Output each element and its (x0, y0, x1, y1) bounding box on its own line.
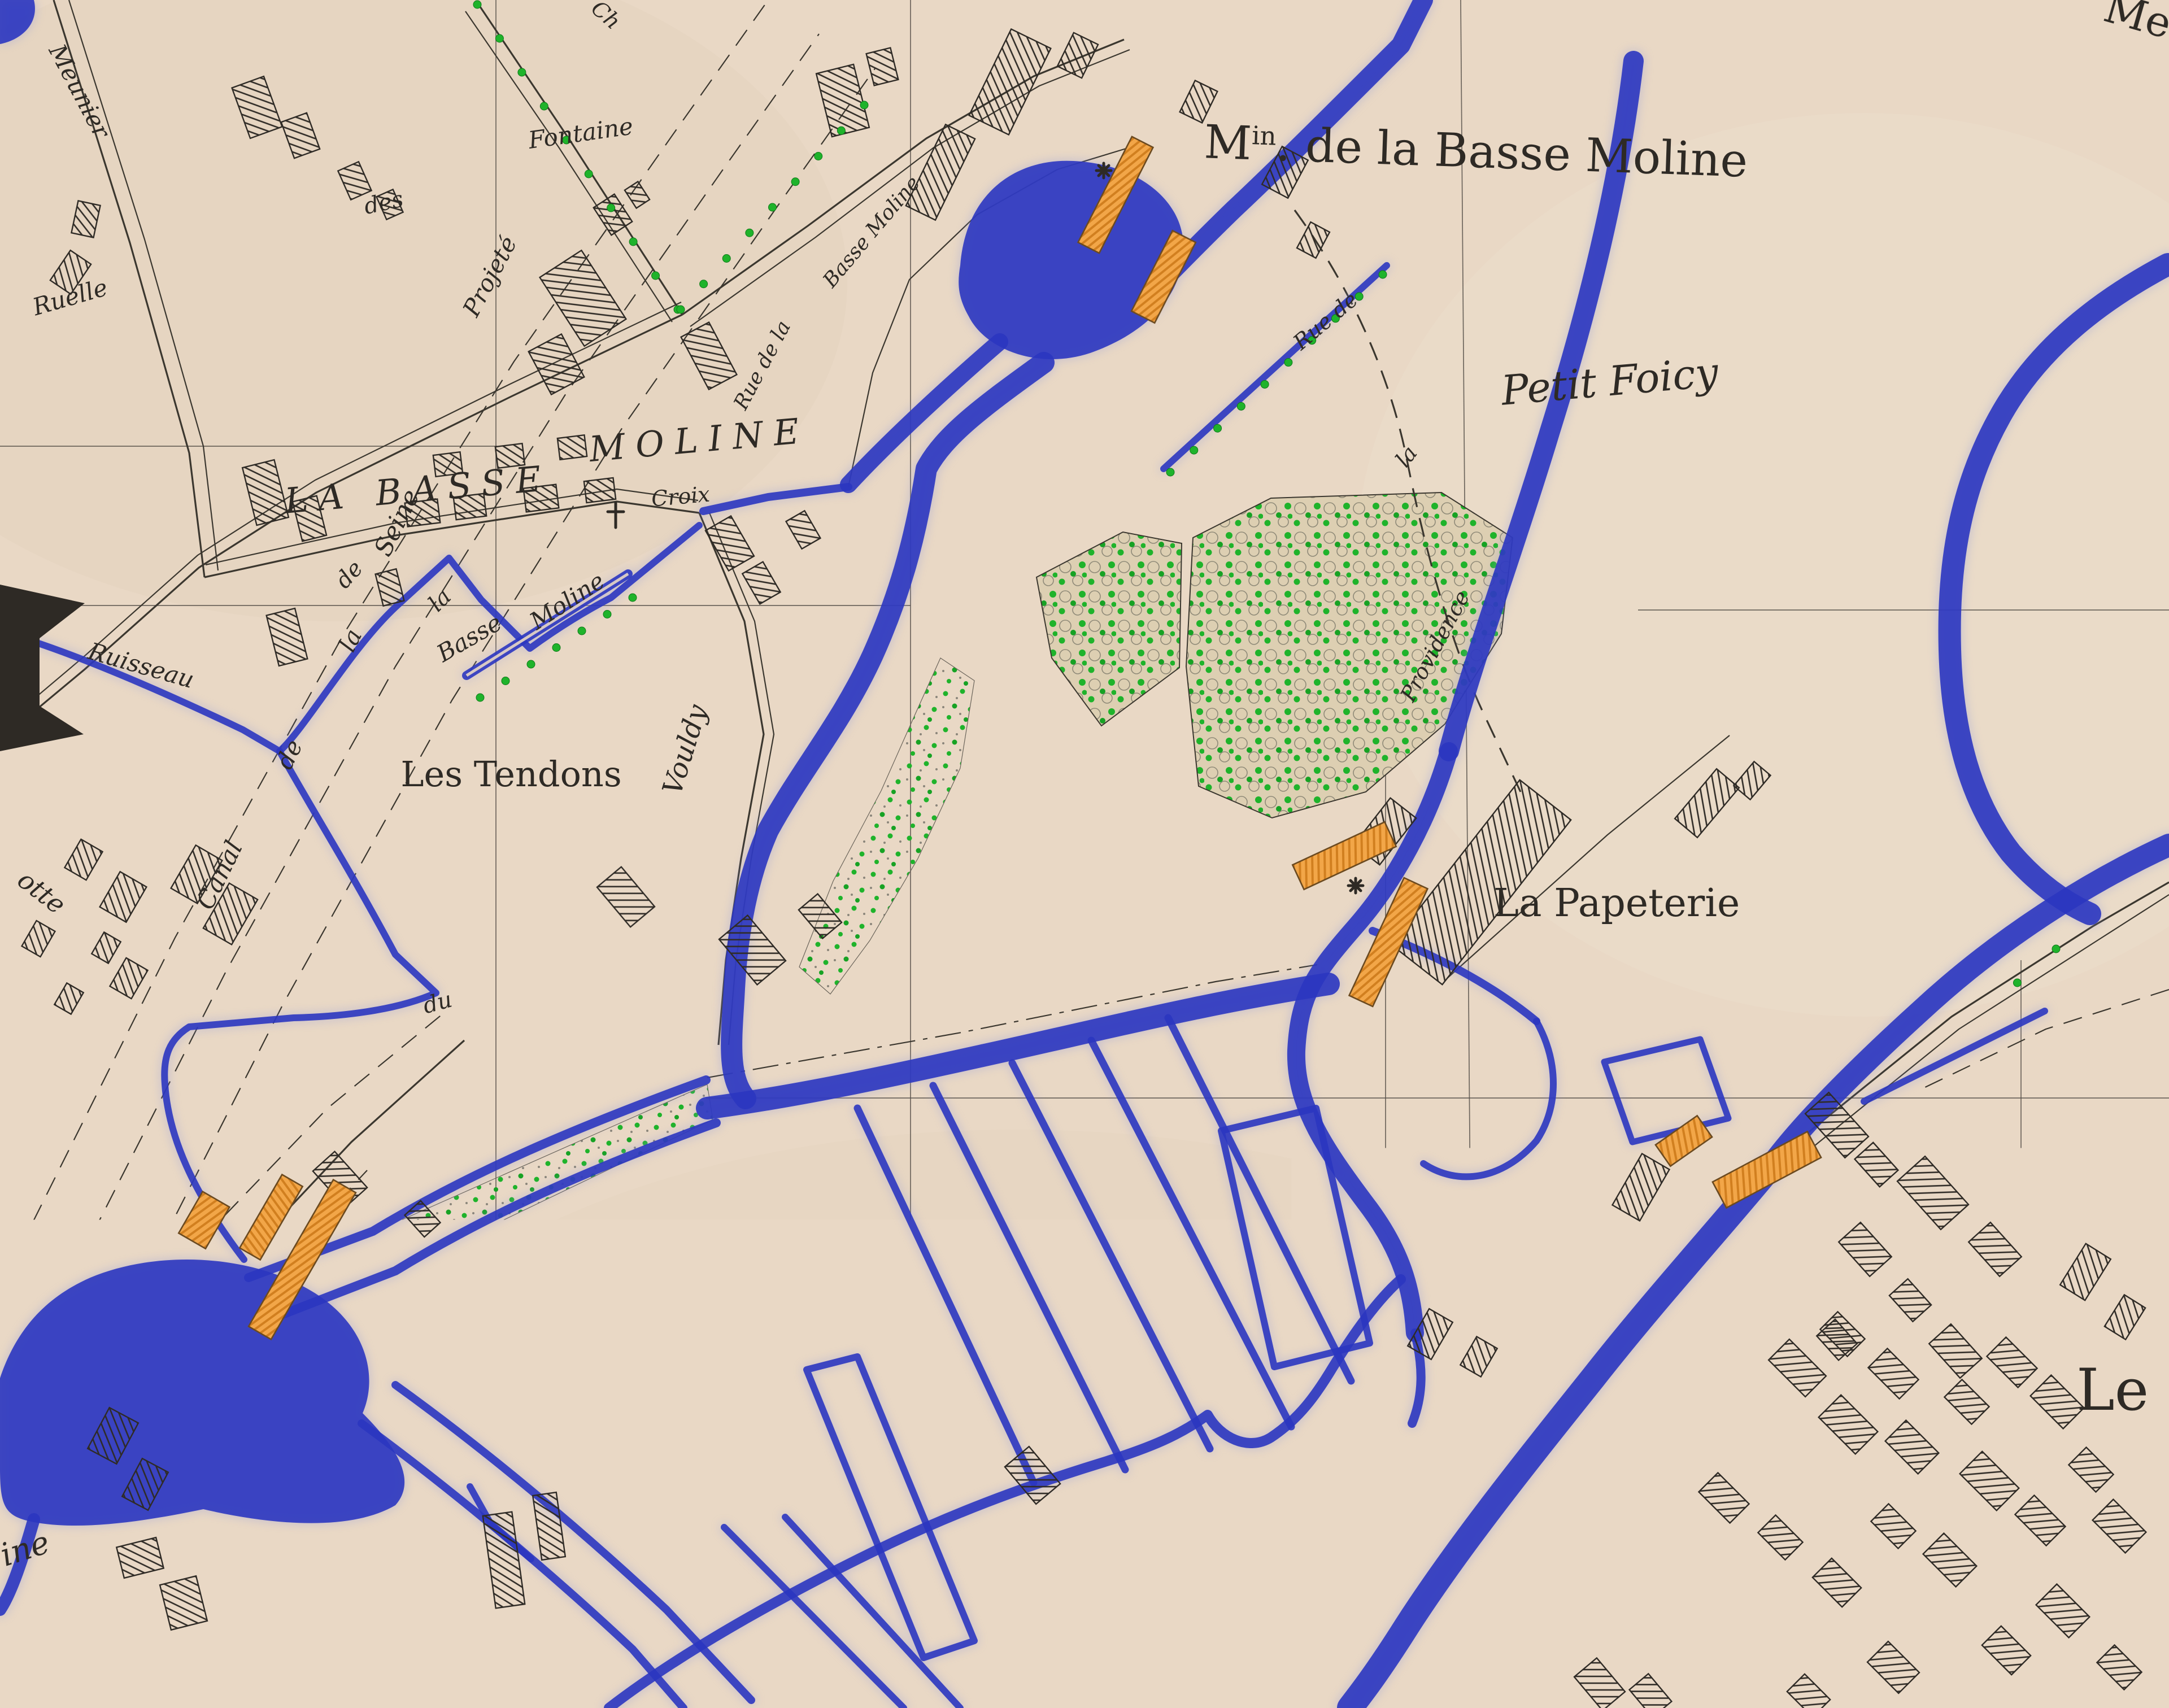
historic-map-scan: Min. de la Basse MolinePetit FoicyLA BAS… (0, 0, 2169, 1708)
avenue-tree-icon (860, 101, 868, 109)
avenue-tree-icon (1396, 1650, 1404, 1658)
avenue-tree-icon (652, 272, 660, 280)
avenue-tree-icon (1679, 1404, 1687, 1412)
avenue-tree-icon (1363, 1690, 1371, 1698)
avenue-tree-icon (1747, 1628, 1755, 1636)
map-label-le-partial: Le (2076, 1357, 2149, 1424)
avenue-tree-icon (1363, 1199, 1371, 1206)
avenue-tree-icon (476, 694, 484, 701)
avenue-tree-icon (1664, 1322, 1672, 1330)
avenue-tree-icon (700, 280, 708, 288)
mill-star-icon (1096, 163, 1111, 178)
avenue-tree-icon (1849, 1668, 1857, 1676)
avenue-tree-icon (791, 178, 799, 186)
avenue-tree-icon (934, 1531, 942, 1539)
avenue-tree-icon (1394, 1215, 1402, 1223)
avenue-tree-icon (1883, 1683, 1891, 1690)
avenue-tree-icon (607, 204, 615, 212)
avenue-tree-icon (629, 238, 637, 246)
avenue-tree-icon (1815, 1655, 1823, 1663)
building (558, 435, 587, 460)
avenue-tree-icon (1332, 1181, 1340, 1189)
avenue-tree-icon (2052, 945, 2060, 953)
avenue-tree-icon (527, 660, 535, 668)
avenue-tree-icon (1537, 1576, 1545, 1584)
avenue-tree-icon (896, 1546, 904, 1554)
avenue-tree-icon (518, 68, 526, 76)
avenue-tree-icon (1820, 1148, 1828, 1156)
avenue-tree-icon (585, 170, 593, 178)
avenue-tree-icon (629, 594, 637, 602)
avenue-tree-icon (578, 627, 586, 635)
avenue-tree-icon (1781, 1182, 1789, 1190)
avenue-tree-icon (603, 611, 611, 618)
avenue-tree-icon (1764, 1199, 1772, 1207)
avenue-tree-icon (1466, 1661, 1474, 1669)
mill-star-icon (412, 1439, 426, 1453)
avenue-tree-icon (1430, 1609, 1438, 1616)
avenue-tree-icon (1425, 1232, 1433, 1240)
avenue-tree-icon (1858, 1114, 1866, 1122)
avenue-tree-icon (1713, 1614, 1721, 1622)
avenue-tree-icon (859, 1561, 866, 1569)
map-label-croix-2: Croix (1569, 1395, 1626, 1422)
avenue-tree-icon (1820, 1233, 1828, 1241)
map-canvas: Min. de la Basse MolinePetit FoicyLA BAS… (0, 0, 2169, 1708)
map-label-les-tendons: Les Tendons (400, 753, 621, 795)
mill-star-icon (309, 1286, 324, 1301)
avenue-tree-icon (1301, 1164, 1309, 1172)
avenue-tree-icon (495, 34, 503, 42)
avenue-tree-icon (1679, 1600, 1687, 1608)
avenue-tree-icon (1190, 446, 1198, 454)
avenue-tree-icon (1917, 1696, 1924, 1704)
avenue-tree-icon (1585, 1385, 1593, 1393)
avenue-tree-icon (1975, 1013, 1983, 1021)
avenue-tree-icon (1697, 1281, 1705, 1289)
avenue-tree-icon (1936, 1047, 1944, 1055)
map-label-la-papeterie: La Papeterie (1493, 881, 1740, 926)
map-label-croix-1: Croix (650, 482, 711, 512)
avenue-tree-icon (1464, 1568, 1471, 1576)
avenue-tree-icon (473, 1, 481, 8)
avenue-tree-icon (1284, 359, 1292, 367)
avenue-tree-icon (746, 229, 754, 237)
avenue-tree-icon (552, 644, 560, 652)
avenue-tree-icon (1597, 1352, 1605, 1360)
avenue-tree-icon (1501, 1618, 1509, 1626)
avenue-tree-icon (1714, 1361, 1722, 1369)
avenue-tree-icon (1781, 1641, 1789, 1649)
avenue-tree-icon (1750, 1319, 1758, 1327)
avenue-tree-icon (722, 255, 730, 263)
avenue-tree-icon (2013, 979, 2021, 987)
mill-star-icon (1702, 1140, 1717, 1155)
avenue-tree-icon (502, 677, 509, 685)
building (584, 478, 616, 503)
avenue-tree-icon (769, 203, 777, 211)
avenue-tree-icon (1497, 1527, 1505, 1535)
avenue-tree-icon (1199, 1425, 1207, 1433)
avenue-tree-icon (1785, 1276, 1793, 1284)
avenue-tree-icon (1166, 468, 1174, 476)
avenue-tree-icon (1456, 1250, 1464, 1258)
avenue-tree-icon (1608, 1490, 1616, 1498)
avenue-tree-icon (1573, 1533, 1580, 1541)
avenue-tree-icon (1010, 1501, 1018, 1509)
avenue-tree-icon (821, 1576, 829, 1584)
mill-star-icon (1348, 878, 1363, 893)
avenue-tree-icon (1731, 1240, 1739, 1248)
avenue-tree-icon (1530, 1486, 1538, 1494)
avenue-tree-icon (1237, 402, 1245, 410)
avenue-tree-icon (972, 1516, 980, 1524)
avenue-tree-icon (677, 306, 685, 313)
avenue-tree-icon (540, 102, 548, 110)
avenue-tree-icon (1643, 1447, 1651, 1455)
avenue-tree-icon (1161, 1440, 1169, 1448)
avenue-tree-icon (1048, 1485, 1056, 1493)
avenue-tree-icon (1261, 380, 1269, 388)
avenue-tree-icon (1214, 424, 1222, 432)
avenue-tree-icon (1379, 271, 1387, 278)
avenue-tree-icon (837, 127, 845, 134)
avenue-tree-icon (1563, 1445, 1571, 1453)
avenue-tree-icon (1487, 1267, 1495, 1275)
avenue-tree-icon (815, 152, 822, 160)
